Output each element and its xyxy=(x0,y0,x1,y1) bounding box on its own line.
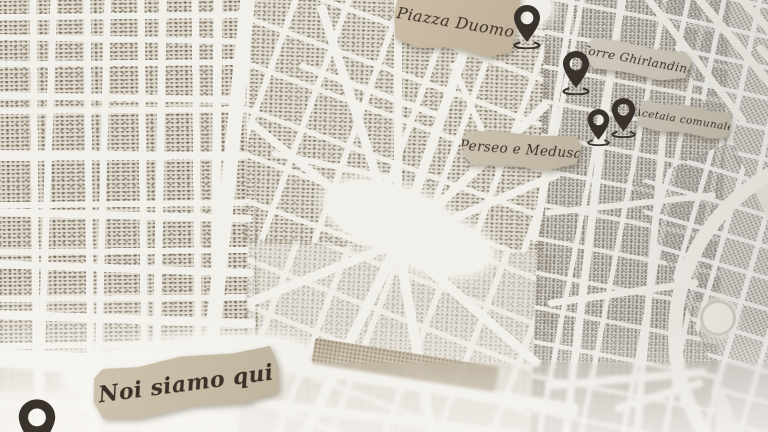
label-piazza-duomo: Piazza Duomo xyxy=(392,0,525,50)
roundabout xyxy=(700,300,736,336)
label-text: Acetaia comunale xyxy=(633,106,735,134)
label-text: Noi siamo qui xyxy=(97,360,275,409)
wall-map-photo: Piazza Duomo Torre Ghirlandina Acetaia c… xyxy=(0,0,768,432)
label-text: Piazza Duomo xyxy=(395,3,516,41)
label-text: Perseo e Medusa xyxy=(459,138,582,163)
